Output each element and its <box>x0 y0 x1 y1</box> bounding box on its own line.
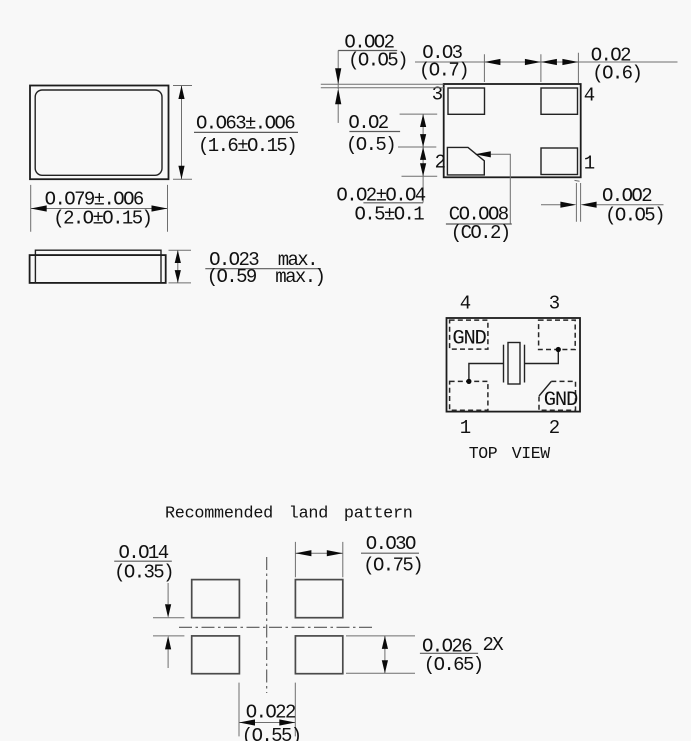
svg-text:(O.O5): (O.O5) <box>605 204 664 226</box>
svg-text:4: 4 <box>460 293 471 315</box>
svg-text:(O.35): (O.35) <box>114 561 173 583</box>
svg-text:Recommended land pattern: Recommended land pattern <box>165 505 413 524</box>
svg-text:(O.65): (O.65) <box>424 654 483 676</box>
svg-text:2: 2 <box>549 417 560 439</box>
svg-text:4: 4 <box>584 85 595 107</box>
svg-text:1: 1 <box>460 417 471 439</box>
svg-text:2X: 2X <box>482 634 504 656</box>
svg-text:1: 1 <box>584 153 595 175</box>
svg-text:2: 2 <box>435 152 446 174</box>
svg-text:GND: GND <box>452 328 486 351</box>
svg-text:(O.75): (O.75) <box>363 554 422 576</box>
svg-text:(CO.2): (CO.2) <box>451 222 510 244</box>
svg-text:(O.55): (O.55) <box>242 725 301 741</box>
svg-text:(2.O±O.15): (2.O±O.15) <box>53 208 151 230</box>
svg-text:(O.O5): (O.O5) <box>348 50 407 72</box>
svg-text:O.5±O.1: O.5±O.1 <box>354 204 424 226</box>
svg-text:O.O3O: O.O3O <box>366 533 416 555</box>
svg-text:(1.6±O.15): (1.6±O.15) <box>198 135 296 157</box>
svg-text:(O.7): (O.7) <box>419 60 468 82</box>
svg-text:3: 3 <box>432 84 443 106</box>
svg-text:3: 3 <box>549 293 560 315</box>
svg-text:(O.6): (O.6) <box>592 63 641 85</box>
svg-text:TOP VIEW: TOP VIEW <box>469 444 551 463</box>
svg-text:GND: GND <box>544 389 578 412</box>
svg-text:(O.59 max.): (O.59 max.) <box>207 266 325 288</box>
svg-text:O.O63±.OO6: O.O63±.OO6 <box>196 113 295 135</box>
svg-text:(O.5): (O.5) <box>346 134 395 156</box>
